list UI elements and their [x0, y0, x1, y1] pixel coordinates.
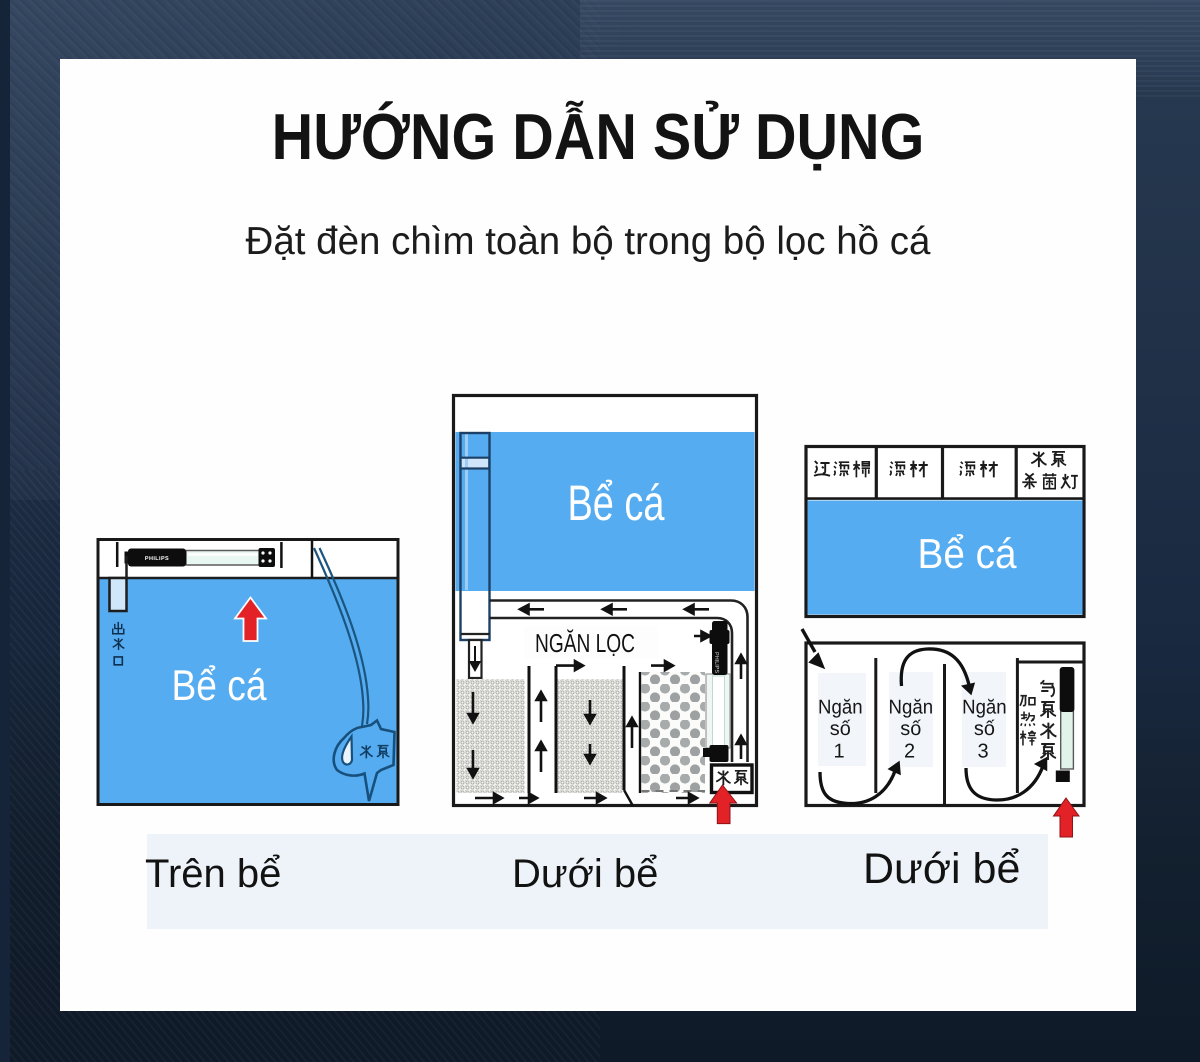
svg-text:Ngăn: Ngăn — [818, 697, 863, 719]
svg-text:3: 3 — [977, 741, 988, 763]
svg-text:số: số — [830, 718, 851, 740]
svg-text:NGĂN LỌC: NGĂN LỌC — [535, 628, 635, 658]
svg-text:Bể cá: Bể cá — [918, 530, 1018, 577]
svg-text:Bể cá: Bể cá — [172, 662, 267, 710]
svg-text:Ngăn: Ngăn — [962, 697, 1007, 719]
svg-text:2: 2 — [904, 741, 915, 763]
svg-text:PHILIPS: PHILIPS — [145, 556, 169, 562]
svg-text:PHILIPS: PHILIPS — [713, 652, 719, 674]
svg-text:số: số — [900, 718, 921, 740]
svg-text:Ngăn: Ngăn — [889, 697, 934, 719]
svg-text:số: số — [974, 718, 995, 740]
svg-text:Bể cá: Bể cá — [568, 475, 665, 531]
svg-text:1: 1 — [833, 741, 844, 763]
